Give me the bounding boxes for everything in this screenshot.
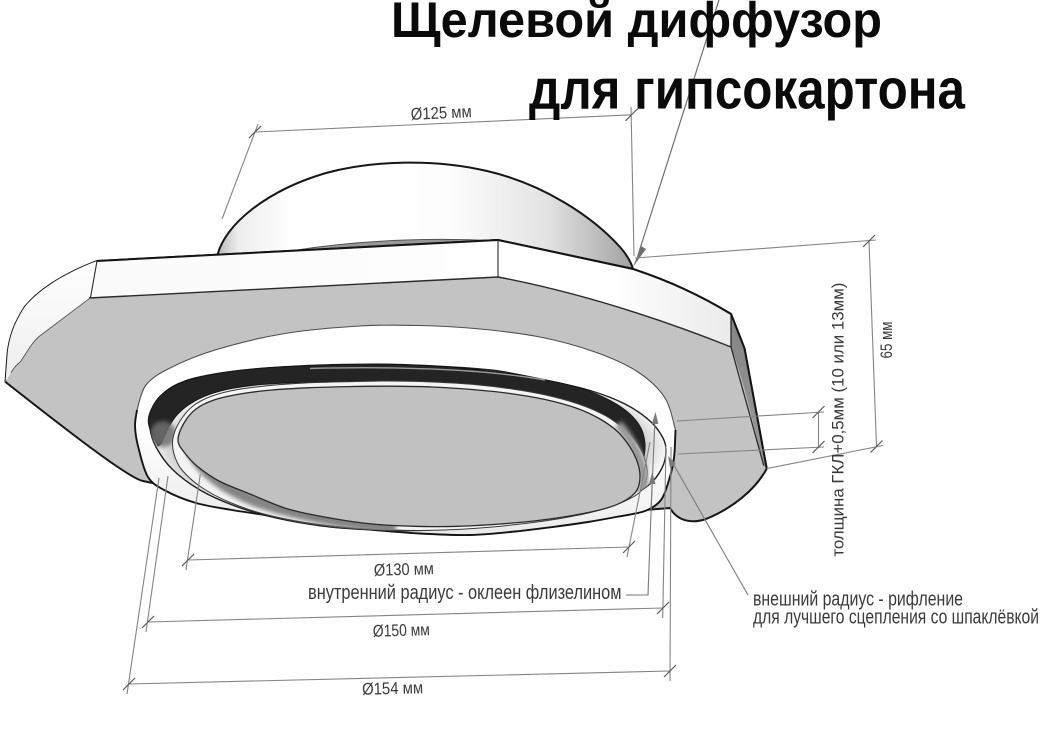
svg-text:для лучшего сцепления со шпакл: для лучшего сцепления со шпаклёвкой xyxy=(753,606,1039,628)
svg-text:Щелевой диффузор: Щелевой диффузор xyxy=(391,0,882,48)
svg-text:толщина ГКЛ+0,5мм (10 или 13мм: толщина ГКЛ+0,5мм (10 или 13мм) xyxy=(829,283,848,557)
svg-text:внутренний радиус - оклеен фли: внутренний радиус - оклеен флизелином xyxy=(308,582,622,604)
svg-text:Ø130 мм: Ø130 мм xyxy=(374,559,435,580)
svg-text:65 мм: 65 мм xyxy=(877,322,896,359)
svg-text:Ø125 мм: Ø125 мм xyxy=(410,102,472,124)
svg-text:Ø154 мм: Ø154 мм xyxy=(362,678,423,698)
svg-text:Ø150 мм: Ø150 мм xyxy=(373,620,431,641)
svg-text:для гипсокартона: для гипсокартона xyxy=(529,58,966,122)
